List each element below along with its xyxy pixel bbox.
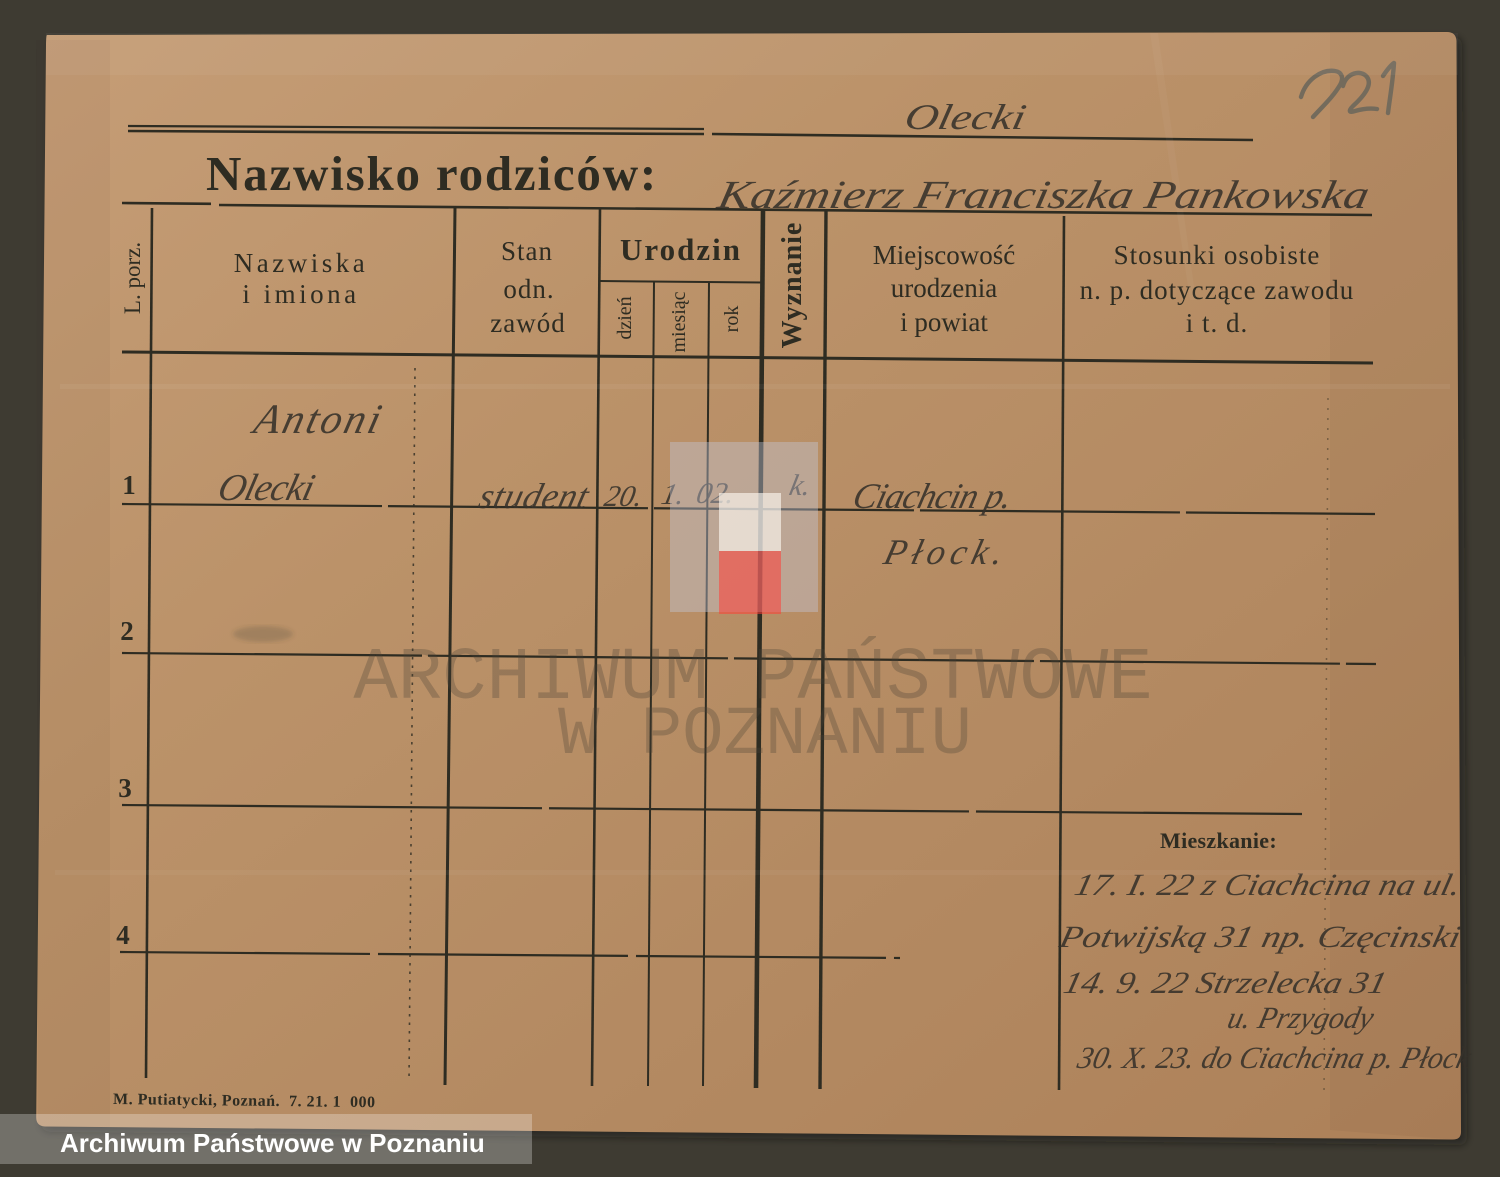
svg-text:Wyznanie: Wyznanie (777, 222, 808, 349)
svg-text:zawód: zawód (490, 308, 565, 338)
svg-text:Stan: Stan (501, 236, 553, 266)
svg-text:L. porz.: L. porz. (120, 242, 145, 314)
svg-text:W POZNANIU: W POZNANIU (558, 696, 972, 774)
svg-text:4: 4 (116, 920, 130, 950)
svg-text:odn.: odn. (503, 274, 554, 304)
svg-text:Ciachcin p.: Ciachcin p. (849, 476, 1017, 516)
svg-text:Olecki: Olecki (214, 468, 319, 509)
svg-text:Nazwisko rodziców:: Nazwisko rodziców: (206, 146, 658, 201)
svg-text:rok: rok (721, 306, 743, 333)
svg-text:M. Putiatycki, Poznań. 7. 21.: M. Putiatycki, Poznań. 7. 21. 1 000 (113, 1091, 376, 1111)
svg-text:dzień: dzień (614, 296, 636, 339)
svg-text:14. 9. 22 Strzelecka 31: 14. 9. 22 Strzelecka 31 (1060, 965, 1390, 1000)
svg-text:u. Przygody: u. Przygody (1224, 1000, 1377, 1035)
svg-text:Stosunki osobiste: Stosunki osobiste (1114, 240, 1321, 270)
svg-text:1: 1 (122, 470, 136, 500)
svg-text:student: student (475, 476, 594, 516)
svg-text:Mieszkanie:: Mieszkanie: (1160, 828, 1277, 853)
svg-text:miesiąc: miesiąc (668, 291, 690, 352)
svg-text:30. X. 23. do Ciachcina p. Pło: 30. X. 23. do Ciachcina p. Płock (1073, 1040, 1475, 1075)
svg-text:urodzenia: urodzenia (891, 273, 997, 303)
svg-text:Archiwum Państwowe w Poznaniu: Archiwum Państwowe w Poznaniu (60, 1128, 485, 1158)
svg-text:Urodzin: Urodzin (620, 232, 742, 267)
svg-text:Olecki: Olecki (901, 97, 1029, 137)
svg-text:Miejscowość: Miejscowość (873, 240, 1015, 270)
svg-text:20.: 20. (602, 479, 647, 513)
svg-text:Nazwiska: Nazwiska (234, 248, 368, 278)
svg-text:i t. d.: i t. d. (1186, 308, 1249, 338)
svg-text:Potwijską 31 np. Częcinski: Potwijską 31 np. Częcinski (1055, 919, 1464, 954)
svg-text:Kaźmierz Franciszka Pankowska: Kaźmierz Franciszka Pankowska (713, 172, 1374, 217)
svg-text:i powiat: i powiat (900, 307, 988, 337)
svg-text:i imiona: i imiona (242, 279, 359, 309)
svg-text:3: 3 (118, 773, 132, 803)
svg-text:2: 2 (120, 616, 134, 646)
svg-text:n. p. dotyczące zawodu: n. p. dotyczące zawodu (1080, 275, 1355, 305)
